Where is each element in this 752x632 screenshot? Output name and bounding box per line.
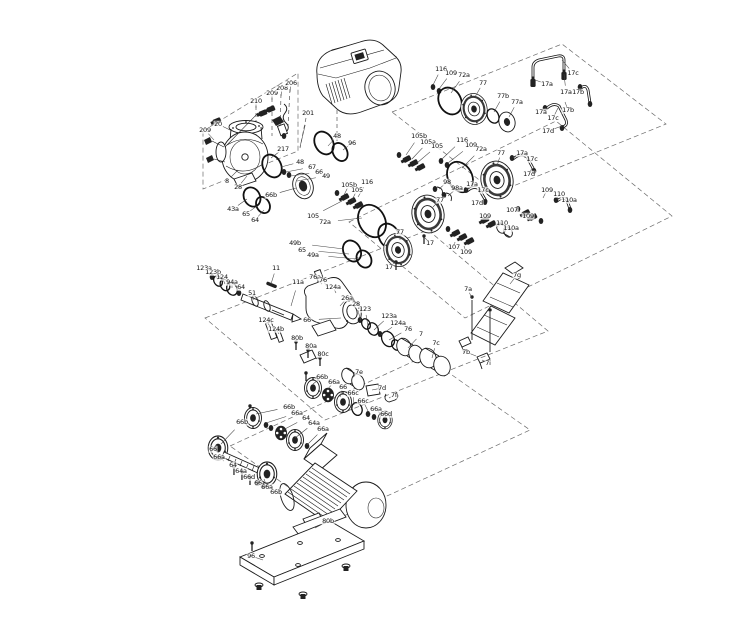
part-label: 48 xyxy=(296,159,305,166)
part-label: 17d xyxy=(471,200,484,207)
part-label: 66 xyxy=(303,317,312,324)
part-label: 109 xyxy=(460,249,473,256)
part-label: 49 xyxy=(322,173,331,180)
part-label: 66 xyxy=(209,446,218,453)
part-label: 7g xyxy=(513,272,522,279)
part-label: 65 xyxy=(242,211,251,218)
part-label: 7a xyxy=(464,286,473,293)
part-label: 7i xyxy=(485,360,492,367)
part-label: 20 xyxy=(214,121,223,128)
part-label: 17d xyxy=(523,171,536,178)
part-label: 105 xyxy=(431,143,444,150)
part-label: 66c xyxy=(357,398,369,405)
part-label: 98a xyxy=(451,185,464,192)
label-leader-lines xyxy=(0,0,752,632)
part-label: 17a xyxy=(535,109,548,116)
part-label: 72a xyxy=(475,146,488,153)
part-label: 66b xyxy=(270,489,283,496)
part-label: 7f xyxy=(390,392,397,399)
part-label: 201 xyxy=(302,110,315,117)
part-label: 80b xyxy=(322,518,335,525)
part-label: 17c xyxy=(477,187,489,194)
part-label: 80c xyxy=(317,351,329,358)
part-label: 17b xyxy=(572,89,585,96)
part-label: 96 xyxy=(348,140,357,147)
part-label: 17a xyxy=(560,89,573,96)
diagram-canvas: 2092021020920820620121782843a65644867664… xyxy=(0,0,752,632)
part-label: 124a xyxy=(325,284,342,291)
part-label: 7c xyxy=(432,340,440,347)
part-label: 96 xyxy=(247,553,256,560)
part-label: 66b xyxy=(316,374,329,381)
part-label: 77 xyxy=(396,229,405,236)
part-label: 28 xyxy=(234,184,243,191)
part-label: 7d xyxy=(378,385,387,392)
part-label: 210 xyxy=(250,98,263,105)
part-label: 66d xyxy=(380,411,393,418)
part-label: 65 xyxy=(298,247,307,254)
part-label: 77 xyxy=(497,150,506,157)
part-label: 66b xyxy=(236,419,249,426)
part-label: 17c xyxy=(567,70,579,77)
part-label: 17c xyxy=(547,115,559,122)
part-label: 123 xyxy=(359,306,372,313)
part-label: 7e xyxy=(355,369,364,376)
part-label: 72a xyxy=(319,219,332,226)
part-label: 107 xyxy=(448,244,461,251)
part-label: 77a xyxy=(511,99,524,106)
part-label: 64 xyxy=(251,217,260,224)
part-label: 110a xyxy=(561,197,578,204)
part-label: 7b xyxy=(462,349,471,356)
part-label: 11a xyxy=(292,279,305,286)
part-label: 17b xyxy=(562,107,575,114)
part-label: 77b xyxy=(497,93,510,100)
part-label: 105 xyxy=(351,187,364,194)
part-label: 66a xyxy=(213,454,226,461)
part-label: 72a xyxy=(458,72,471,79)
part-label: 49a xyxy=(307,252,320,259)
part-label: 17d xyxy=(542,128,555,135)
part-label: 66c xyxy=(347,390,359,397)
part-label: 209 xyxy=(199,127,212,134)
part-label: 77 xyxy=(436,197,445,204)
part-label: 110a xyxy=(503,225,520,232)
part-label: 80a xyxy=(305,343,318,350)
part-label: 80b xyxy=(291,335,304,342)
part-label: 17 xyxy=(426,240,435,247)
part-label: 206 xyxy=(285,80,298,87)
part-label: 17 xyxy=(385,264,394,271)
part-label: 51 xyxy=(248,290,257,297)
part-label: 11 xyxy=(272,265,281,272)
part-label: 43a xyxy=(227,206,240,213)
part-label: 76 xyxy=(404,326,413,333)
part-label: 116 xyxy=(361,179,374,186)
part-label: 7 xyxy=(419,331,424,338)
part-label: 124c xyxy=(258,317,274,324)
part-label: 48 xyxy=(333,133,342,140)
part-label: 64 xyxy=(237,284,246,291)
part-label: 8 xyxy=(225,178,230,185)
part-label: 77 xyxy=(479,80,488,87)
part-label: 217 xyxy=(277,146,290,153)
part-label: 109 xyxy=(522,213,535,220)
part-label: 124b xyxy=(268,326,285,333)
part-label: 109 xyxy=(445,70,458,77)
part-label: 66a xyxy=(317,426,330,433)
part-label: 105 xyxy=(307,213,320,220)
part-label: 17c xyxy=(526,156,538,163)
part-label: 107 xyxy=(506,207,519,214)
part-label: 66b xyxy=(265,192,278,199)
part-label: 109 xyxy=(479,213,492,220)
part-label: 109 xyxy=(541,187,554,194)
part-label: 17a xyxy=(541,81,554,88)
